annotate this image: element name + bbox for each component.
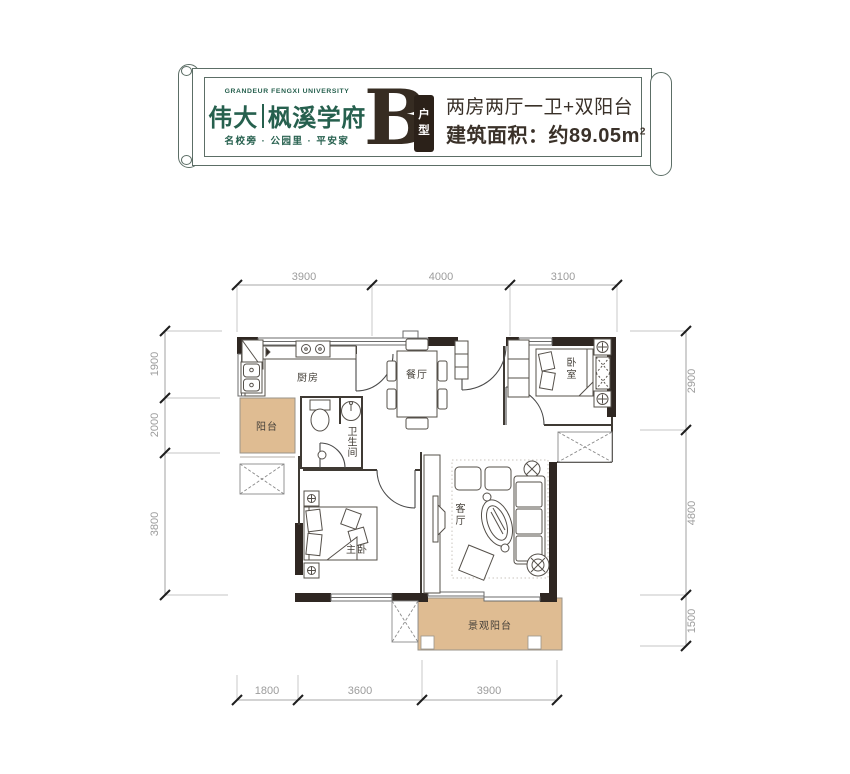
floorplan-page: GRANDEUR FENGXI UNIVERSITY 伟大 枫溪学府 名校旁 ·… xyxy=(0,0,850,774)
dim-bottom: 1800 3600 3900 xyxy=(232,660,562,705)
dim-right: 2900 4800 1500 xyxy=(630,326,698,651)
room-label-bath: 卫生间 xyxy=(348,427,359,459)
master-bedroom xyxy=(304,491,377,578)
dim-label-left-0: 1900 xyxy=(149,352,161,376)
floorplan-drawing: 阳台 景观阳台 xyxy=(0,0,850,774)
living-room xyxy=(424,455,549,593)
dim-label-top-0: 3900 xyxy=(292,271,316,283)
room-label-living: 客厅 xyxy=(456,502,467,527)
dim-label-top-2: 3100 xyxy=(551,271,575,283)
armchair xyxy=(485,467,511,490)
dim-top: 3900 4000 3100 xyxy=(232,271,622,336)
dim-label-right-1: 4800 xyxy=(686,501,698,525)
dim-label-top-1: 4000 xyxy=(429,271,453,283)
tv xyxy=(433,496,438,542)
armchair xyxy=(455,467,481,490)
room-label-master: 主卧 xyxy=(346,543,368,556)
view-balcony: 景观阳台 xyxy=(418,598,562,650)
dim-label-bottom-1: 3600 xyxy=(348,685,372,697)
dim-label-right-2: 1500 xyxy=(686,609,698,633)
bedroom xyxy=(508,339,611,407)
kitchen xyxy=(241,340,356,396)
room-label-balcony: 阳台 xyxy=(256,420,278,433)
dim-label-right-0: 2900 xyxy=(686,369,698,393)
room-label-kitchen: 厨房 xyxy=(297,371,319,384)
shoe-cabinet xyxy=(455,341,468,379)
dining-table xyxy=(397,351,437,417)
room-label-dining: 餐厅 xyxy=(406,368,428,381)
dim-label-left-1: 2000 xyxy=(149,413,161,437)
accent-chair xyxy=(459,545,494,580)
dim-label-bottom-2: 3900 xyxy=(477,685,501,697)
dim-label-bottom-0: 1800 xyxy=(255,685,279,697)
room-label-view-balcony: 景观阳台 xyxy=(468,619,512,632)
dim-label-left-2: 3800 xyxy=(149,512,161,536)
room-label-bedroom: 卧室 xyxy=(567,356,578,381)
wardrobe xyxy=(508,340,529,397)
dresser xyxy=(596,357,610,389)
dim-left: 1900 2000 3800 xyxy=(149,326,228,600)
dining-room xyxy=(387,339,468,429)
balcony-left: 阳台 xyxy=(240,398,295,457)
